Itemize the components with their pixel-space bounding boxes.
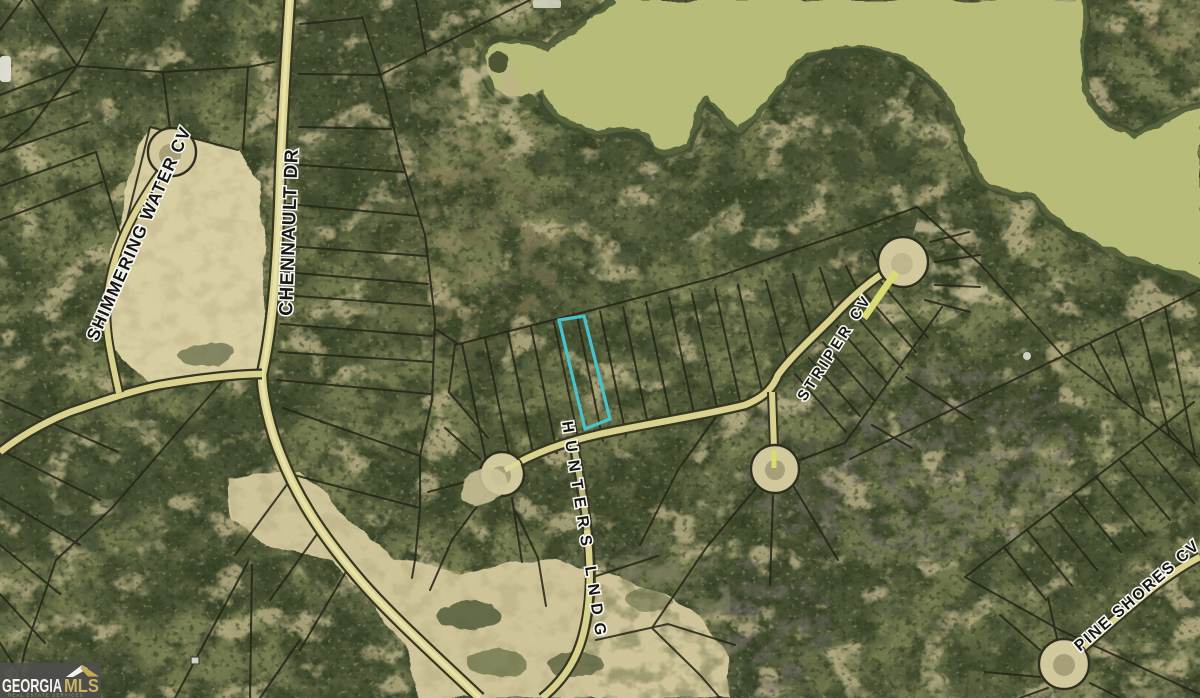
svg-text:REAL ESTATE SERVICES: REAL ESTATE SERVICES xyxy=(8,693,84,698)
